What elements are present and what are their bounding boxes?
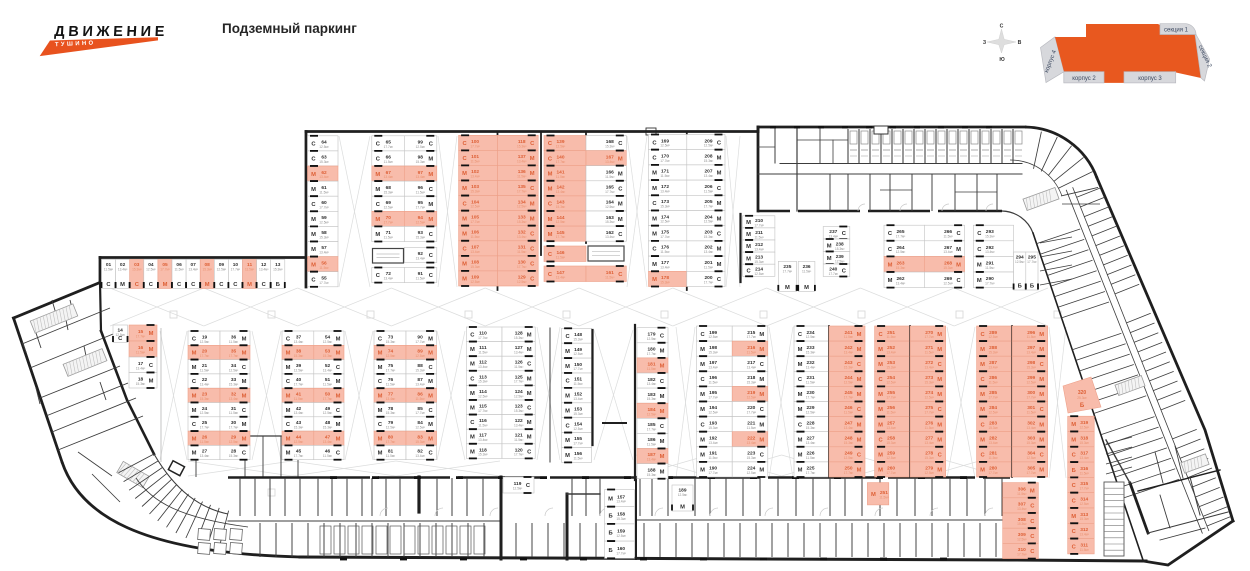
svg-text:М: М	[717, 247, 722, 253]
svg-text:15.3м²: 15.3м²	[806, 426, 815, 430]
svg-text:М: М	[470, 406, 475, 412]
svg-text:15.3м²: 15.3м²	[416, 160, 425, 164]
svg-text:15.3м²: 15.3м²	[416, 236, 425, 240]
svg-text:11.5м²: 11.5м²	[229, 340, 238, 344]
svg-text:17.7м²: 17.7м²	[294, 383, 303, 387]
svg-text:15.3м²: 15.3м²	[835, 247, 844, 251]
svg-text:11.5м²: 11.5м²	[605, 175, 614, 179]
svg-text:М: М	[980, 392, 985, 398]
svg-text:М: М	[336, 394, 341, 400]
svg-text:М: М	[242, 394, 247, 400]
svg-text:М: М	[336, 436, 341, 442]
svg-text:М: М	[980, 362, 985, 368]
svg-text:13.4м²: 13.4м²	[647, 458, 656, 462]
svg-text:М: М	[717, 216, 722, 222]
svg-text:11.5м²: 11.5м²	[136, 351, 145, 355]
svg-text:М: М	[375, 232, 380, 238]
svg-text:Б: Б	[609, 514, 613, 520]
svg-text:15.3м²: 15.3м²	[924, 381, 933, 385]
svg-text:15.3м²: 15.3м²	[754, 260, 763, 264]
svg-text:17.7м²: 17.7м²	[319, 281, 328, 285]
svg-text:М: М	[149, 378, 154, 384]
svg-text:М: М	[527, 420, 532, 426]
svg-text:12.5м²: 12.5м²	[294, 440, 303, 444]
svg-text:М: М	[700, 392, 705, 398]
svg-text:М: М	[1039, 437, 1044, 443]
svg-text:11.5м²: 11.5м²	[319, 190, 328, 194]
svg-text:11.5м²: 11.5м²	[708, 456, 717, 460]
svg-text:М: М	[548, 232, 553, 238]
svg-text:М: М	[717, 156, 722, 162]
svg-text:М: М	[470, 391, 475, 397]
svg-text:М: М	[378, 351, 383, 357]
svg-text:17.7м²: 17.7м²	[200, 354, 209, 358]
svg-text:М: М	[652, 262, 657, 268]
svg-text:11.5м²: 11.5м²	[605, 275, 614, 279]
svg-text:17.7м²: 17.7м²	[517, 190, 526, 194]
svg-text:М: М	[652, 232, 657, 238]
svg-text:13.4м²: 13.4м²	[605, 235, 614, 239]
svg-text:М: М	[192, 394, 197, 400]
svg-text:М: М	[798, 347, 803, 353]
svg-text:15.3м²: 15.3м²	[886, 365, 895, 369]
svg-text:М: М	[311, 172, 316, 178]
svg-text:17.7м²: 17.7м²	[886, 396, 895, 400]
svg-text:11.5м²: 11.5м²	[1027, 335, 1036, 339]
svg-text:13.4м²: 13.4м²	[384, 175, 393, 179]
svg-text:13.4м²: 13.4м²	[660, 189, 669, 193]
svg-text:13.4м²: 13.4м²	[886, 426, 895, 430]
svg-text:12.5м²: 12.5м²	[556, 220, 565, 224]
svg-text:11.5м²: 11.5м²	[386, 454, 395, 458]
svg-text:12.5м²: 12.5м²	[229, 368, 238, 372]
svg-text:М: М	[428, 336, 433, 342]
svg-text:М: М	[798, 437, 803, 443]
svg-text:17.7м²: 17.7м²	[573, 442, 582, 446]
svg-text:М: М	[652, 171, 657, 177]
svg-text:М: М	[857, 347, 862, 353]
svg-text:М: М	[527, 347, 532, 353]
svg-text:13.4м²: 13.4м²	[844, 426, 853, 430]
svg-text:Б: Б	[609, 548, 613, 554]
svg-text:секция 1: секция 1	[1164, 28, 1189, 34]
svg-text:М: М	[857, 332, 862, 338]
svg-text:М: М	[857, 392, 862, 398]
svg-text:11.5м²: 11.5м²	[384, 160, 393, 164]
svg-text:12.5м²: 12.5м²	[747, 471, 756, 475]
svg-text:13.4м²: 13.4м²	[514, 424, 523, 428]
svg-text:С: С	[1000, 24, 1004, 30]
svg-text:11.5м²: 11.5м²	[1080, 471, 1089, 475]
svg-text:13.4м²: 13.4м²	[416, 257, 425, 261]
svg-text:М: М	[428, 217, 433, 223]
svg-text:13.4м²: 13.4м²	[323, 368, 332, 372]
svg-text:17.7м²: 17.7м²	[319, 205, 328, 209]
svg-text:М: М	[608, 496, 613, 502]
svg-text:М: М	[286, 394, 291, 400]
svg-text:М: М	[977, 278, 982, 284]
svg-text:13.4м²: 13.4м²	[294, 340, 303, 344]
svg-text:12.5м²: 12.5м²	[517, 205, 526, 209]
svg-text:М: М	[565, 453, 570, 459]
svg-text:11.5м²: 11.5м²	[556, 255, 565, 259]
svg-text:15.3м²: 15.3м²	[384, 190, 393, 194]
svg-text:М: М	[717, 262, 722, 268]
svg-text:М: М	[798, 392, 803, 398]
svg-text:12.5м²: 12.5м²	[415, 354, 424, 358]
svg-text:М: М	[565, 349, 570, 355]
svg-text:17.7м²: 17.7м²	[517, 265, 526, 269]
svg-text:М: М	[660, 394, 665, 400]
svg-text:М: М	[878, 392, 883, 398]
svg-text:М: М	[242, 336, 247, 342]
svg-text:13.4м²: 13.4м²	[200, 383, 209, 387]
svg-text:12.5м²: 12.5м²	[1079, 502, 1088, 506]
svg-text:12.5м²: 12.5м²	[200, 411, 209, 415]
svg-text:13.4м²: 13.4м²	[924, 365, 933, 369]
svg-text:11.5м²: 11.5м²	[747, 426, 756, 430]
svg-text:М: М	[937, 437, 942, 443]
svg-text:11.5м²: 11.5м²	[319, 266, 328, 270]
svg-text:12.5м²: 12.5м²	[924, 471, 933, 475]
svg-text:15.3м²: 15.3м²	[747, 381, 756, 385]
svg-text:М: М	[759, 392, 764, 398]
svg-text:12.5м²: 12.5м²	[747, 396, 756, 400]
svg-text:М: М	[700, 468, 705, 474]
svg-text:12.5м²: 12.5м²	[319, 221, 328, 225]
svg-text:М: М	[530, 201, 535, 207]
svg-text:15.3м²: 15.3м²	[1017, 522, 1026, 526]
svg-text:12.5м²: 12.5м²	[708, 335, 717, 339]
svg-text:11.5м²: 11.5м²	[573, 382, 582, 386]
svg-text:12.5м²: 12.5м²	[886, 456, 895, 460]
svg-text:15.3м²: 15.3м²	[573, 337, 582, 341]
svg-text:11.5м²: 11.5м²	[806, 381, 815, 385]
svg-text:12.5м²: 12.5м²	[470, 280, 479, 284]
svg-text:М: М	[311, 247, 316, 253]
svg-text:12.5м²: 12.5м²	[924, 396, 933, 400]
svg-text:13.4м²: 13.4м²	[384, 277, 393, 281]
svg-text:12.5м²: 12.5м²	[806, 411, 815, 415]
svg-text:М: М	[1039, 377, 1044, 383]
svg-text:13.4м²: 13.4м²	[470, 250, 479, 254]
svg-text:11.5м²: 11.5м²	[470, 235, 479, 239]
svg-text:М: М	[660, 364, 665, 370]
svg-text:15.3м²: 15.3м²	[556, 205, 565, 209]
svg-text:12.5м²: 12.5м²	[806, 335, 815, 339]
svg-text:11.5м²: 11.5м²	[704, 189, 713, 193]
svg-text:М: М	[548, 187, 553, 193]
svg-text:М: М	[759, 377, 764, 383]
svg-text:М: М	[618, 156, 623, 162]
svg-text:17.7м²: 17.7м²	[806, 396, 815, 400]
svg-text:М: М	[286, 436, 291, 442]
svg-text:М: М	[428, 379, 433, 385]
svg-text:М: М	[700, 453, 705, 459]
svg-text:М: М	[937, 468, 942, 474]
svg-text:15.3м²: 15.3м²	[844, 441, 853, 445]
svg-text:12.5м²: 12.5м²	[386, 354, 395, 358]
svg-text:М: М	[286, 451, 291, 457]
svg-text:М: М	[652, 216, 657, 222]
svg-text:12.5м²: 12.5м²	[1026, 381, 1035, 385]
svg-text:12.5м²: 12.5м²	[323, 411, 332, 415]
svg-text:13.4м²: 13.4м²	[754, 248, 763, 252]
svg-text:М: М	[746, 244, 751, 250]
svg-text:15.3м²: 15.3м²	[708, 426, 717, 430]
svg-text:М: М	[120, 282, 125, 288]
svg-text:12.5м²: 12.5м²	[416, 221, 425, 225]
svg-text:М: М	[980, 347, 985, 353]
svg-text:М: М	[470, 347, 475, 353]
svg-text:11.5м²: 11.5м²	[478, 424, 487, 428]
svg-text:М: М	[759, 332, 764, 338]
svg-text:11.5м²: 11.5м²	[514, 365, 523, 369]
svg-text:М: М	[618, 217, 623, 223]
svg-text:М: М	[192, 365, 197, 371]
svg-text:12.5м²: 12.5м²	[704, 144, 713, 148]
svg-text:17.7м²: 17.7м²	[514, 453, 523, 457]
svg-text:11.5м²: 11.5м²	[660, 250, 669, 254]
svg-text:15.3м²: 15.3м²	[319, 236, 328, 240]
svg-text:М: М	[192, 451, 197, 457]
svg-text:М: М	[336, 422, 341, 428]
svg-text:15.3м²: 15.3м²	[704, 159, 713, 163]
svg-text:М: М	[798, 362, 803, 368]
svg-text:М: М	[652, 277, 657, 283]
svg-text:17.7м²: 17.7м²	[514, 380, 523, 384]
svg-text:М: М	[871, 492, 876, 498]
svg-text:13.4м²: 13.4м²	[985, 250, 994, 254]
svg-text:15.3м²: 15.3м²	[647, 397, 656, 401]
svg-text:11.5м²: 11.5м²	[384, 236, 393, 240]
svg-text:13.4м²: 13.4м²	[415, 454, 424, 458]
svg-text:12.5м²: 12.5м²	[573, 352, 582, 356]
svg-text:12.5м²: 12.5м²	[708, 411, 717, 415]
svg-text:17.7м²: 17.7м²	[573, 367, 582, 371]
svg-text:М: М	[565, 408, 570, 414]
svg-text:12.5м²: 12.5м²	[217, 268, 226, 272]
svg-text:13.4м²: 13.4м²	[943, 250, 952, 254]
svg-text:М: М	[242, 379, 247, 385]
svg-text:М: М	[660, 469, 665, 475]
svg-text:12.5м²: 12.5м²	[319, 145, 328, 149]
svg-text:17.7м²: 17.7м²	[1027, 260, 1036, 264]
svg-text:Б: Б	[276, 282, 280, 288]
svg-text:М: М	[530, 156, 535, 162]
svg-text:15.3м²: 15.3м²	[573, 412, 582, 416]
svg-text:М: М	[375, 217, 380, 223]
svg-text:15.3м²: 15.3м²	[616, 517, 625, 521]
svg-text:12.5м²: 12.5м²	[415, 426, 424, 430]
svg-text:11.5м²: 11.5м²	[200, 368, 209, 372]
svg-text:13.4м²: 13.4м²	[988, 441, 997, 445]
svg-text:13.4м²: 13.4м²	[573, 397, 582, 401]
svg-text:М: М	[746, 256, 751, 262]
svg-text:М: М	[527, 376, 532, 382]
svg-text:13.4м²: 13.4м²	[136, 366, 145, 370]
svg-text:15.3м²: 15.3м²	[605, 220, 614, 224]
svg-text:17.7м²: 17.7м²	[229, 354, 238, 358]
svg-text:13.4м²: 13.4м²	[319, 251, 328, 255]
svg-text:15.3м²: 15.3м²	[985, 235, 994, 239]
svg-text:12.5м²: 12.5м²	[988, 335, 997, 339]
svg-text:17.7м²: 17.7м²	[806, 471, 815, 475]
svg-text:12.5м²: 12.5м²	[647, 337, 656, 341]
svg-text:15.3м²: 15.3м²	[294, 354, 303, 358]
svg-text:15.3м²: 15.3м²	[514, 409, 523, 413]
svg-text:М: М	[428, 351, 433, 357]
svg-text:М: М	[878, 347, 883, 353]
svg-text:13.4м²: 13.4м²	[924, 441, 933, 445]
svg-text:11.5м²: 11.5м²	[245, 268, 254, 272]
svg-text:М: М	[878, 407, 883, 413]
svg-text:М: М	[1071, 514, 1076, 520]
svg-text:15.3м²: 15.3м²	[660, 205, 669, 209]
svg-text:М: М	[1039, 392, 1044, 398]
svg-text:13.4м²: 13.4м²	[1079, 533, 1088, 537]
svg-text:13.4м²: 13.4м²	[118, 268, 127, 272]
svg-text:М: М	[530, 216, 535, 222]
svg-text:13.4м²: 13.4м²	[470, 175, 479, 179]
svg-text:17.7м²: 17.7м²	[988, 396, 997, 400]
svg-text:М: М	[1071, 422, 1076, 428]
svg-text:М: М	[798, 453, 803, 459]
svg-text:12.5м²: 12.5м²	[470, 205, 479, 209]
svg-text:17.7м²: 17.7м²	[1026, 471, 1035, 475]
svg-text:12.5м²: 12.5м²	[844, 381, 853, 385]
svg-text:17.7м²: 17.7м²	[704, 281, 713, 285]
svg-text:13.4м²: 13.4м²	[708, 365, 717, 369]
svg-text:13.4м²: 13.4м²	[259, 268, 268, 272]
svg-text:12.5м²: 12.5м²	[605, 205, 614, 209]
svg-text:М: М	[336, 379, 341, 385]
svg-text:11.5м²: 11.5м²	[647, 367, 656, 371]
svg-text:Б: Б	[1030, 284, 1034, 290]
svg-text:17.7м²: 17.7м²	[556, 160, 565, 164]
svg-text:11.5м²: 11.5м²	[1080, 548, 1089, 552]
svg-text:12.5м²: 12.5м²	[704, 220, 713, 224]
svg-text:М: М	[530, 171, 535, 177]
svg-text:М: М	[149, 347, 154, 353]
svg-text:11.5м²: 11.5м²	[1017, 492, 1026, 496]
svg-text:17.7м²: 17.7м²	[386, 368, 395, 372]
svg-text:13.4м²: 13.4м²	[616, 500, 625, 504]
svg-text:13.4м²: 13.4м²	[1079, 456, 1088, 460]
svg-text:М: М	[205, 282, 210, 288]
svg-text:15.3м²: 15.3м²	[708, 350, 717, 354]
svg-text:15.3м²: 15.3м²	[704, 235, 713, 239]
svg-text:17.7м²: 17.7м²	[647, 427, 656, 431]
svg-text:М: М	[1039, 347, 1044, 353]
svg-text:М: М	[470, 449, 475, 455]
svg-text:М: М	[937, 377, 942, 383]
svg-text:М: М	[857, 422, 862, 428]
svg-text:М: М	[700, 437, 705, 443]
svg-text:М: М	[192, 351, 197, 357]
svg-text:15.3м²: 15.3м²	[806, 350, 815, 354]
svg-text:11.5м²: 11.5м²	[747, 350, 756, 354]
svg-text:М: М	[878, 468, 883, 474]
svg-text:13.4м²: 13.4м²	[704, 250, 713, 254]
svg-text:17.7м²: 17.7м²	[747, 411, 756, 415]
svg-text:М: М	[378, 394, 383, 400]
svg-text:М: М	[888, 262, 893, 268]
svg-text:12.5м²: 12.5м²	[943, 281, 952, 285]
svg-text:М: М	[746, 232, 751, 238]
svg-text:М: М	[527, 435, 532, 441]
svg-text:М: М	[827, 256, 832, 262]
svg-text:17.7м²: 17.7м²	[323, 397, 332, 401]
svg-text:11.5м²: 11.5м²	[802, 269, 811, 273]
svg-text:17.7м²: 17.7м²	[844, 471, 853, 475]
svg-text:12.5м²: 12.5м²	[556, 145, 565, 149]
svg-text:11.5м²: 11.5м²	[416, 277, 425, 281]
svg-text:13.4м²: 13.4м²	[896, 281, 905, 285]
svg-text:М: М	[527, 333, 532, 339]
svg-text:М: М	[375, 172, 380, 178]
svg-text:М: М	[286, 365, 291, 371]
svg-text:12.5м²: 12.5м²	[835, 259, 844, 263]
svg-text:15.3м²: 15.3м²	[886, 441, 895, 445]
svg-text:Подземный паркинг: Подземный паркинг	[222, 21, 357, 36]
svg-text:15.3м²: 15.3м²	[200, 397, 209, 401]
svg-text:М: М	[857, 377, 862, 383]
svg-text:15.3м²: 15.3м²	[132, 268, 141, 272]
svg-text:12.5м²: 12.5м²	[513, 487, 522, 491]
svg-text:М: М	[247, 282, 252, 288]
svg-text:М: М	[717, 171, 722, 177]
svg-text:М: М	[428, 157, 433, 163]
svg-text:17.7м²: 17.7м²	[136, 335, 145, 339]
svg-text:13.4м²: 13.4м²	[844, 350, 853, 354]
svg-text:М: М	[242, 422, 247, 428]
svg-text:12.5м²: 12.5м²	[1026, 456, 1035, 460]
svg-text:15.3м²: 15.3м²	[988, 426, 997, 430]
svg-text:13.4м²: 13.4м²	[647, 382, 656, 386]
svg-text:17.7м²: 17.7м²	[985, 281, 994, 285]
svg-text:М: М	[242, 351, 247, 357]
svg-text:М: М	[878, 422, 883, 428]
svg-text:М: М	[1039, 332, 1044, 338]
svg-text:13.4м²: 13.4м²	[319, 175, 328, 179]
svg-text:17.7м²: 17.7м²	[478, 409, 487, 413]
svg-text:11.5м²: 11.5м²	[1027, 411, 1036, 415]
svg-text:12.5м²: 12.5м²	[678, 493, 687, 497]
svg-text:15.3м²: 15.3м²	[470, 265, 479, 269]
svg-text:11.5м²: 11.5м²	[229, 411, 238, 415]
svg-text:17.7м²: 17.7м²	[294, 454, 303, 458]
svg-text:М: М	[977, 262, 982, 268]
svg-text:11.5м²: 11.5м²	[806, 456, 815, 460]
svg-text:12.5м²: 12.5м²	[478, 394, 487, 398]
svg-text:13.4м²: 13.4м²	[1026, 350, 1035, 354]
svg-text:12.5м²: 12.5м²	[616, 534, 625, 538]
svg-text:11.5м²: 11.5м²	[556, 175, 565, 179]
svg-text:12.5м²: 12.5м²	[323, 340, 332, 344]
svg-text:М: М	[336, 336, 341, 342]
svg-text:М: М	[548, 217, 553, 223]
svg-text:13.4м²: 13.4м²	[386, 397, 395, 401]
svg-text:15.3м²: 15.3м²	[323, 426, 332, 430]
svg-text:15.3м²: 15.3м²	[1026, 441, 1035, 445]
svg-text:М: М	[980, 437, 985, 443]
svg-text:13.4м²: 13.4м²	[747, 365, 756, 369]
svg-text:М: М	[428, 172, 433, 178]
svg-text:11.5м²: 11.5м²	[104, 268, 113, 272]
svg-text:М: М	[375, 187, 380, 193]
svg-text:М: М	[878, 453, 883, 459]
